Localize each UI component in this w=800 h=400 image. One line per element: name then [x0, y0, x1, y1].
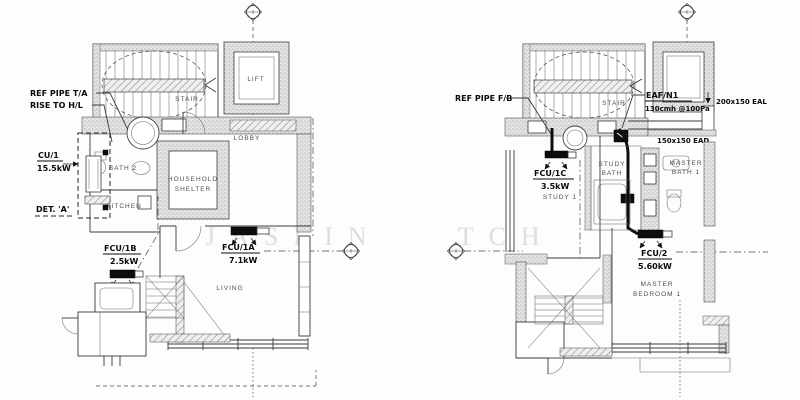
- room-label-lift: LIFT: [247, 76, 264, 83]
- room-label-stair: STAIR: [175, 96, 199, 103]
- room-label-kitchen: KITCHEN: [106, 203, 142, 210]
- fcu1c-tag: FCU/1C: [534, 169, 566, 178]
- room-label-study-bath: BATH: [602, 170, 623, 177]
- fcu1c-capacity: 3.5kW: [541, 182, 569, 191]
- cu1-detail-box: [78, 133, 110, 218]
- left-stair: [93, 44, 218, 126]
- fcu2-capacity: 5.60kW: [638, 262, 672, 271]
- room-label-study1: STUDY 1: [543, 194, 577, 201]
- cu1-tag: CU/1: [38, 151, 59, 160]
- eal-duct-size: 200x150 EAL: [716, 98, 767, 106]
- room-label-stair: STAIR: [602, 100, 626, 107]
- room-label-household-shelter: SHELTER: [175, 186, 212, 193]
- room-label-bath2: BATH 2: [109, 165, 137, 172]
- plumbing-duct: [127, 117, 159, 149]
- room-label-master-bedroom: MASTER: [640, 281, 673, 288]
- door-arc: [176, 226, 201, 251]
- grid-marker-icon: [343, 243, 360, 260]
- right-floor-plan: STAIR: [455, 42, 768, 397]
- eaf-tag: EAF/N1: [646, 91, 679, 100]
- fcu2-tag: FCU/2: [641, 249, 667, 258]
- ref-pipe-note: REF PIPE T/A: [30, 89, 88, 98]
- fcu1b-capacity: 2.5kW: [110, 257, 138, 266]
- master-bath-room: [641, 142, 715, 236]
- room-label-lobby: LOBBY: [234, 135, 261, 142]
- room-label-living: LIVING: [216, 285, 243, 292]
- room-label-study-bath: STUDY: [598, 161, 625, 168]
- room-label-master-bedroom: BEDROOM 1: [633, 291, 681, 298]
- study-bath-room: [591, 146, 641, 230]
- fcu2-unit: [638, 230, 672, 248]
- fcu1c-unit: [545, 151, 576, 169]
- plan-canvas: STAIR LIFT LOBBY: [0, 0, 800, 400]
- room-label-master-bath: BATH 1: [672, 169, 700, 176]
- cu1-capacity: 15.5kW: [37, 164, 71, 173]
- eaf-capacity: 130cmh @100Pa: [645, 105, 710, 113]
- room-label-household-shelter: HOUSEHOLD: [168, 176, 218, 183]
- plumbing-duct: [563, 126, 587, 150]
- grid-marker-icon: [245, 4, 262, 21]
- ead-duct-size: 150x150 EAD: [657, 137, 709, 145]
- door-arc: [62, 318, 78, 334]
- ref-pipe-note: RISE TO H/L: [30, 101, 83, 110]
- door-arc: [548, 358, 564, 374]
- detail-a-tag: DET. 'A': [36, 205, 69, 214]
- room-label-master-bath: MASTER: [669, 160, 702, 167]
- toilet: [667, 194, 681, 212]
- fcu1a-capacity: 7.1kW: [229, 256, 257, 265]
- fcu1a-tag: FCU/1A: [222, 243, 255, 252]
- grid-marker-icon: [448, 243, 465, 260]
- right-lift-shaft: [653, 42, 714, 112]
- left-floor-plan: STAIR LIFT LOBBY: [30, 42, 316, 397]
- grid-marker-icon: [679, 4, 696, 21]
- left-entry: [62, 312, 146, 366]
- right-internal-stair: [516, 262, 612, 374]
- ref-pipe-note: REF PIPE F/B: [455, 94, 512, 103]
- floor-plan-drawing: JASLIN TCH: [0, 0, 800, 400]
- fcu1b-tag: FCU/1B: [104, 244, 136, 253]
- lobby-right-wall: [297, 134, 311, 232]
